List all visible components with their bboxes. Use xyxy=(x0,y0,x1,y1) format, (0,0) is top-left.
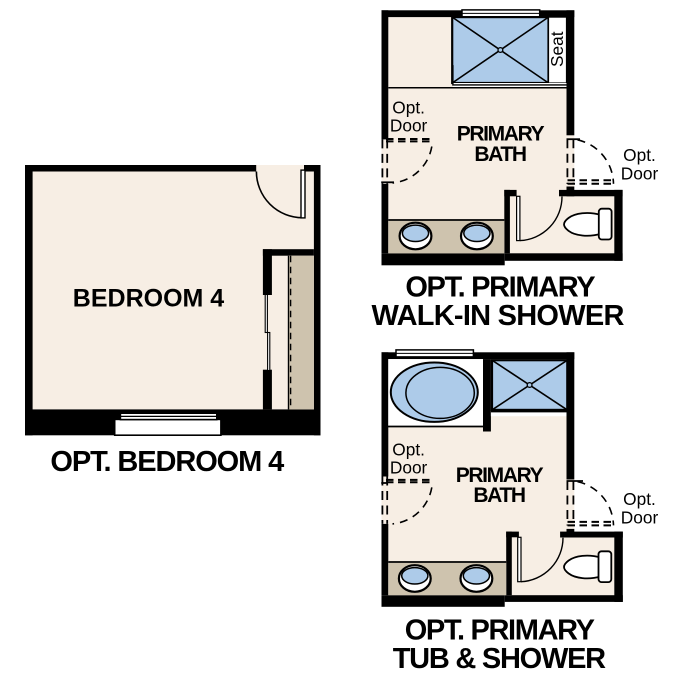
svg-text:Door: Door xyxy=(390,116,428,136)
svg-text:TUB & SHOWER: TUB & SHOWER xyxy=(393,643,606,675)
svg-text:BEDROOM 4: BEDROOM 4 xyxy=(73,285,225,313)
svg-text:Door: Door xyxy=(621,164,659,184)
svg-text:OPT. PRIMARY: OPT. PRIMARY xyxy=(405,272,595,304)
svg-text:Opt.: Opt. xyxy=(623,145,656,165)
svg-text:Opt.: Opt. xyxy=(623,489,656,509)
svg-text:BATH: BATH xyxy=(474,143,526,166)
svg-text:OPT. BEDROOM 4: OPT. BEDROOM 4 xyxy=(50,446,284,478)
svg-text:Door: Door xyxy=(390,457,428,477)
svg-text:OPT. PRIMARY: OPT. PRIMARY xyxy=(405,615,595,647)
svg-text:Door: Door xyxy=(621,507,659,527)
svg-text:Seat: Seat xyxy=(547,31,567,67)
svg-text:BATH: BATH xyxy=(473,484,525,507)
svg-text:Opt.: Opt. xyxy=(392,439,425,459)
svg-text:Opt.: Opt. xyxy=(392,98,425,118)
svg-text:WALK-IN SHOWER: WALK-IN SHOWER xyxy=(372,300,625,332)
